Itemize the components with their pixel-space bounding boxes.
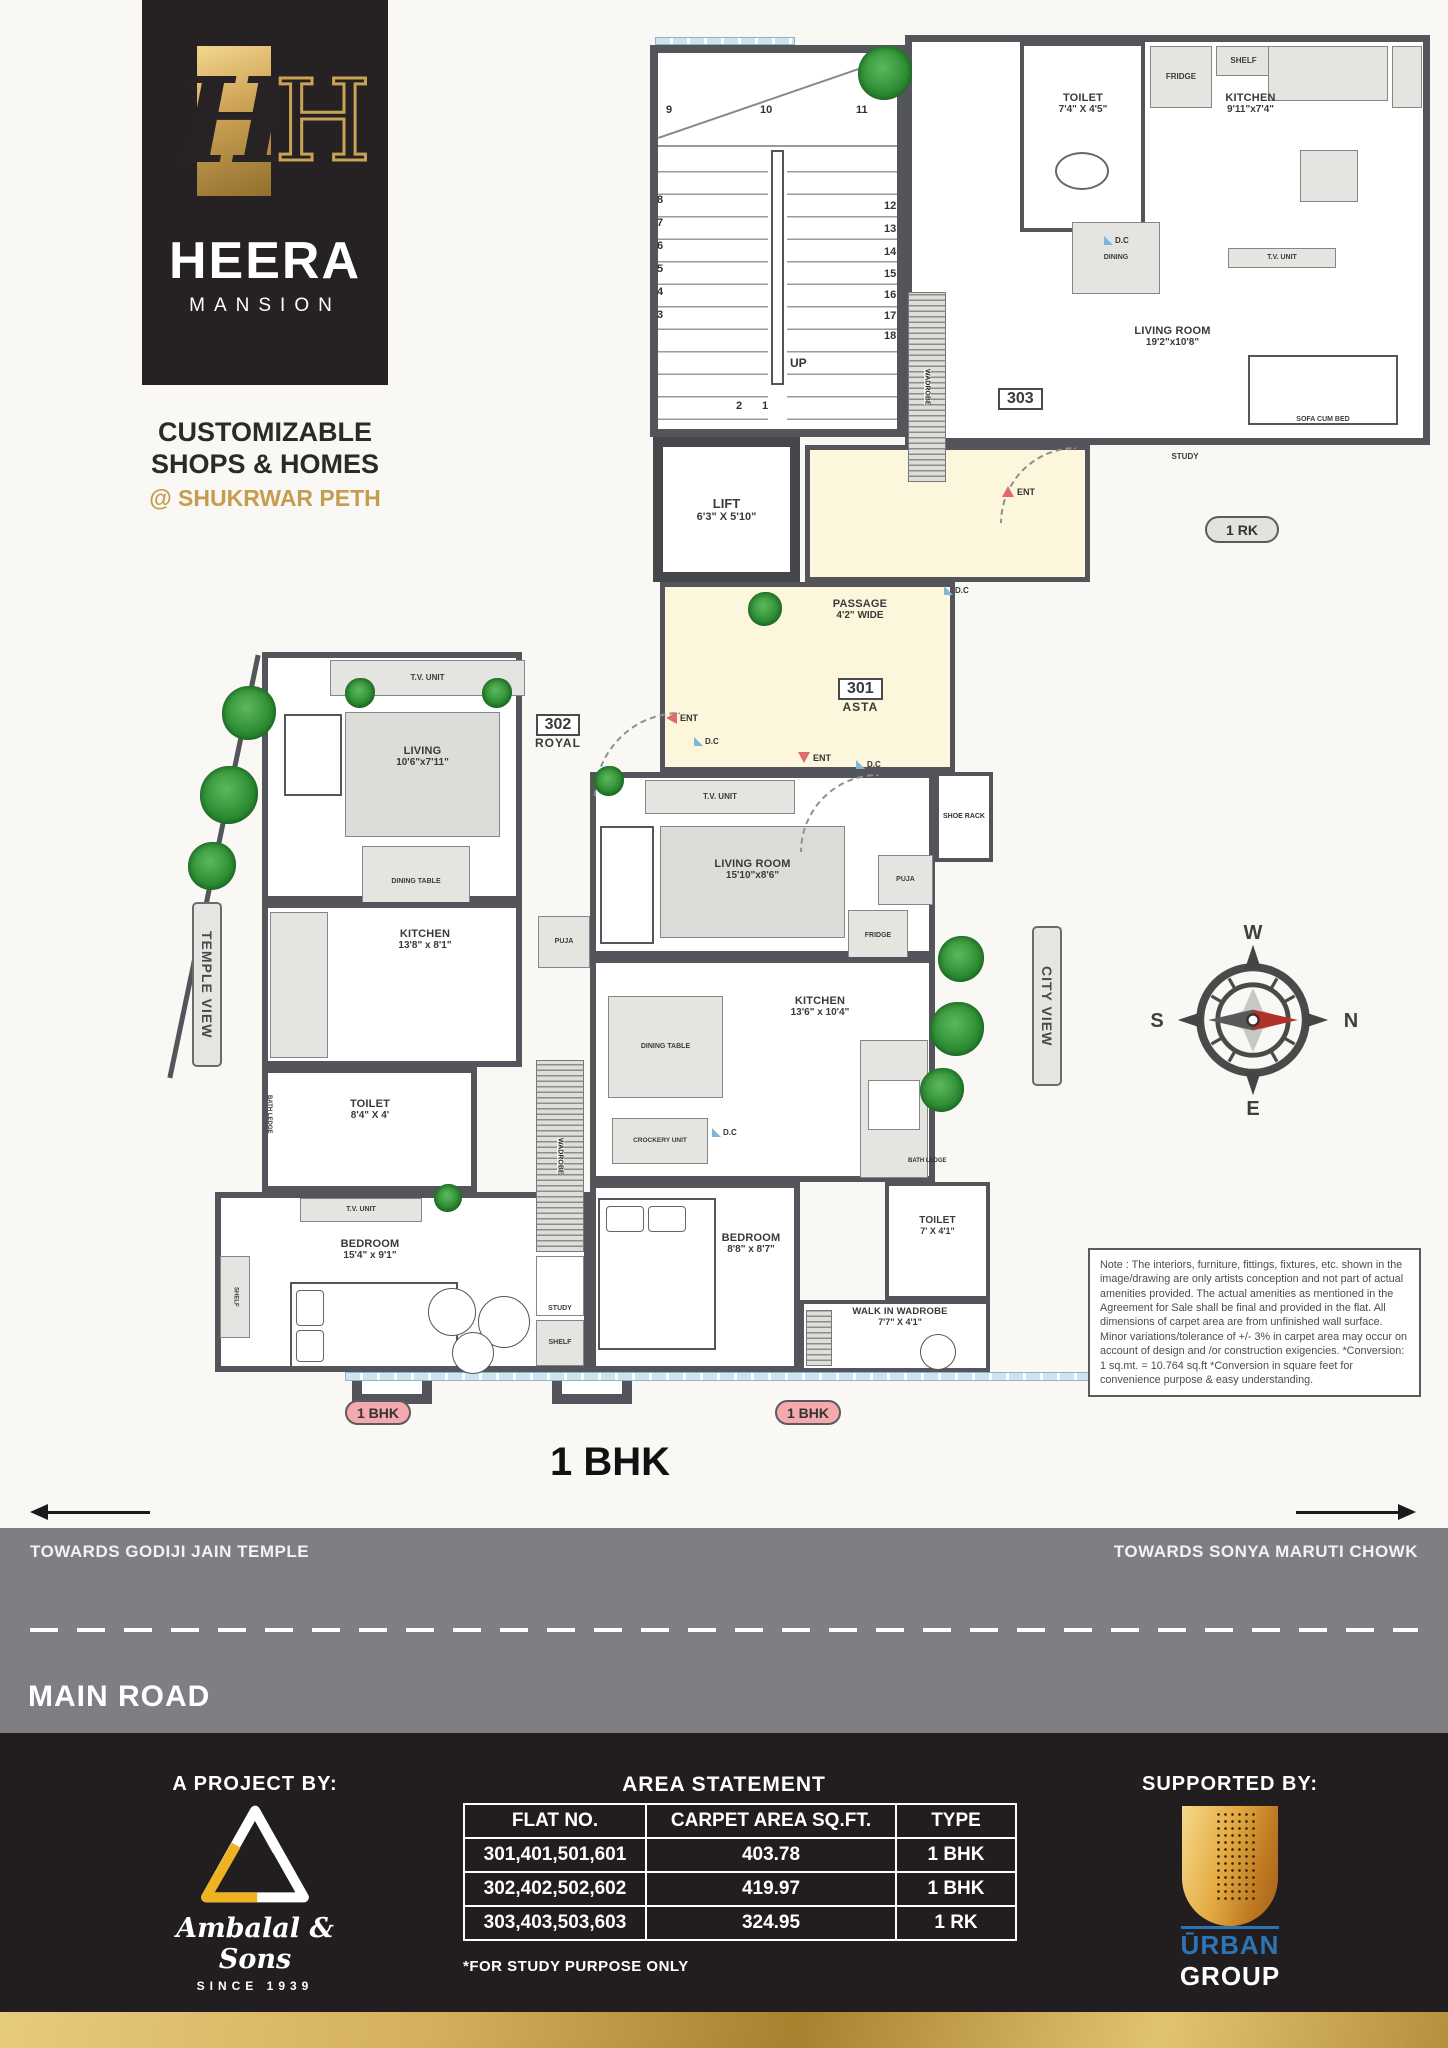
kitchen-counter-302	[270, 912, 328, 1058]
wadrobe-302: WADROBE	[536, 1060, 584, 1252]
brand-name: HEERA	[142, 231, 388, 291]
sofa-301	[600, 826, 654, 944]
shoe-rack-301: SHOE RACK	[935, 772, 993, 862]
unit-303-type-badge: 1 RK	[1205, 516, 1279, 543]
living-303-label: LIVING ROOM 19'2"x10'8"	[1105, 325, 1240, 348]
tagline-line1: CUSTOMIZABLE	[120, 418, 410, 446]
unit-303-id: 303	[998, 388, 1043, 410]
road-left-direction: TOWARDS GODIJI JAIN TEMPLE	[30, 1542, 309, 1562]
stair-up-label: UP	[790, 356, 807, 370]
wadrobe-301	[806, 1310, 832, 1366]
supported-by-label: SUPPORTED BY:	[1130, 1773, 1330, 1796]
person-figure	[428, 1288, 476, 1336]
rug-302	[345, 712, 500, 837]
puja-301: PUJA	[878, 855, 933, 905]
stair-step-number: 8	[657, 194, 663, 206]
stair-rail	[771, 150, 784, 385]
table-row: 302,402,502,602419.971 BHK	[464, 1872, 1016, 1906]
study-303-label: STUDY	[1150, 452, 1220, 461]
disclaimer-note: Note : The interiors, furniture, fitting…	[1088, 1248, 1421, 1397]
passage-label: PASSAGE 4'2" WIDE	[790, 598, 930, 621]
person-figure	[920, 1334, 956, 1370]
stair-step-number: 9	[666, 104, 672, 116]
entrance-302-marker: ENT	[666, 712, 698, 724]
dc-triangle-icon	[856, 760, 865, 769]
window-strip	[345, 1372, 1090, 1381]
kitchen-301-label: KITCHEN 13'6" x 10'4"	[745, 995, 895, 1018]
dc-triangle-icon	[944, 586, 953, 595]
main-road-band: TOWARDS GODIJI JAIN TEMPLE TOWARDS SONYA…	[0, 1528, 1448, 1733]
stair-step-number: 2	[736, 400, 742, 412]
puja-302: PUJA	[538, 916, 590, 968]
project-by-label: A PROJECT BY:	[140, 1773, 370, 1796]
bedroom-302-label: BEDROOM 15'4" x 9'1"	[300, 1238, 440, 1261]
stair-flight-right	[787, 150, 897, 429]
stair-step-number: 17	[884, 310, 896, 322]
project-name: Ambalal & Sons	[140, 1913, 370, 1975]
stair-step-number: 1	[762, 400, 768, 412]
shelf-303: SHELF	[1216, 46, 1271, 76]
living-301-label: LIVING ROOM 15'10"x8'6"	[685, 858, 820, 881]
lift-dimension: 6'3" X 5'10"	[697, 511, 757, 523]
tv-unit-302-bedroom: T.V. UNIT	[300, 1198, 422, 1222]
table-row: 303,403,503,603324.951 RK	[464, 1906, 1016, 1940]
stair-step-number: 15	[884, 268, 896, 280]
right-road-arrow-icon	[1296, 1504, 1416, 1520]
toilet-301	[885, 1182, 990, 1300]
tree-icon	[938, 936, 984, 982]
area-statement-title: AREA STATEMENT	[463, 1773, 985, 1797]
stove-303	[1300, 150, 1358, 202]
gold-footer-strip	[0, 2012, 1448, 2048]
stair-step-number: 14	[884, 246, 896, 258]
living-302-label: LIVING 10'6"x7'11"	[365, 745, 480, 768]
brand-logo: H H HEERA MANSION	[142, 0, 388, 385]
bath-ledge-302: BATH LEDGE	[266, 1095, 272, 1134]
stove-301	[868, 1080, 920, 1130]
dc-marker: D.C	[944, 586, 969, 595]
wadrobe-303: WADROBE	[908, 292, 946, 482]
city-view-label: CITY VIEW	[1032, 926, 1062, 1086]
stair-step-number: 16	[884, 289, 896, 301]
brochure-page: { "brand": { "monogram": "H", "name": "H…	[0, 0, 1448, 2048]
dining-table-301: DINING TABLE	[608, 996, 723, 1098]
crockery-unit-301: CROCKERY UNIT	[612, 1118, 708, 1164]
table-footnote: *FOR STUDY PURPOSE ONLY	[463, 1958, 689, 1975]
wc-icon	[1055, 152, 1109, 190]
unit-301-type-badge: 1 BHK	[775, 1400, 841, 1425]
dining-303: DINING	[1072, 222, 1160, 294]
stair-landing-line	[658, 145, 897, 147]
bedroom-301-label: BEDROOM 8'8" x 8'7"	[705, 1232, 797, 1255]
table-row: 301,401,501,601403.781 BHK	[464, 1838, 1016, 1872]
compass-south-label: S	[1142, 1010, 1172, 1033]
dc-marker: D.C	[1104, 236, 1129, 245]
dc-marker: D.C	[712, 1128, 737, 1137]
unit-301-id: 301ASTA	[838, 678, 883, 714]
entrance-301-marker: ENT	[798, 752, 831, 763]
entrance-303-marker: ENT	[1002, 486, 1035, 497]
walkin-301-label: WALK IN WADROBE 7'7" X 4'1"	[830, 1306, 970, 1327]
window-strip	[655, 37, 795, 45]
brand-subname: MANSION	[142, 295, 388, 317]
shelf-302-side: SHELF	[220, 1256, 250, 1338]
dc-triangle-icon	[694, 737, 703, 746]
stair-step-number: 18	[884, 330, 896, 342]
study-302: STUDY	[536, 1256, 584, 1316]
road-center-dash	[30, 1628, 1418, 1632]
project-by-block: A PROJECT BY: Ambalal & Sons SINCE 1939	[140, 1773, 370, 1993]
stair-step-number: 7	[657, 217, 663, 229]
col-flat-no: FLAT NO.	[464, 1804, 646, 1838]
stair-step-number: 4	[657, 286, 663, 298]
pillow-icon	[296, 1330, 324, 1362]
project-since: SINCE 1939	[140, 1979, 370, 1993]
col-carpet-area: CARPET AREA SQ.FT.	[646, 1804, 896, 1838]
pillow-icon	[648, 1206, 686, 1232]
stair-step-number: 11	[856, 104, 868, 116]
kitchen-302-label: KITCHEN 13'8" x 8'1"	[360, 928, 490, 951]
balcony-bracket	[552, 1380, 632, 1404]
pillow-icon	[296, 1290, 324, 1326]
supported-by-block: SUPPORTED BY: ŪRBAN GROUP	[1130, 1773, 1330, 1992]
stair-step-number: 13	[884, 223, 896, 235]
stair-step-number: 6	[657, 240, 663, 252]
left-road-arrow-icon	[30, 1504, 150, 1520]
tree-icon	[188, 842, 236, 890]
stair-flight-left	[658, 150, 768, 429]
monogram-outline-letter: H	[274, 52, 372, 192]
compass-west-label: W	[1238, 922, 1268, 945]
dc-marker: D.C	[694, 737, 719, 746]
tv-unit-303: T.V. UNIT	[1228, 248, 1336, 268]
toilet-302	[262, 1067, 477, 1192]
fridge-301: FRIDGE	[848, 910, 908, 962]
shelf-302: SHELF	[536, 1320, 584, 1366]
footer-band: A PROJECT BY: Ambalal & Sons SINCE 1939 …	[0, 1733, 1448, 2012]
table-header-row: FLAT NO. CARPET AREA SQ.FT. TYPE	[464, 1804, 1016, 1838]
col-type: TYPE	[896, 1804, 1016, 1838]
tagline-line2: SHOPS & HOMES	[120, 450, 410, 478]
dc-triangle-icon	[712, 1128, 721, 1137]
lamp-figure	[452, 1332, 494, 1374]
tree-icon	[200, 766, 258, 824]
tree-icon	[920, 1068, 964, 1112]
toilet-303	[1020, 42, 1145, 232]
ent-arrow-icon	[1002, 486, 1014, 497]
bath-ledge-301: BATH LEDGE	[908, 1158, 947, 1164]
urban-group-logo-icon	[1182, 1806, 1278, 1926]
plan-title: 1 BHK	[460, 1440, 760, 1485]
compass-north-label: N	[1336, 1010, 1366, 1033]
stair-step-number: 12	[884, 200, 896, 212]
kitchen-sink-303	[1392, 46, 1422, 108]
toilet-302-label: TOILET 8'4" X 4'	[300, 1098, 440, 1121]
kitchen-303-label: KITCHEN 9'11"x7'4"	[1188, 92, 1313, 115]
stair-step-number: 3	[657, 309, 663, 321]
brand-monogram-icon: H H	[142, 28, 388, 223]
stair-step-number: 10	[760, 104, 772, 116]
stair-step-number: 5	[657, 263, 663, 275]
sofa-cum-bed-303: SOFA CUM BED	[1248, 355, 1398, 425]
dc-marker: D.C	[856, 760, 881, 769]
lift-label: LIFT	[713, 496, 740, 511]
unit-302-id: 302ROYAL	[535, 714, 581, 750]
dc-triangle-icon	[1104, 236, 1113, 245]
ambalal-sons-logo-icon	[196, 1804, 314, 1904]
temple-view-label: TEMPLE VIEW	[192, 902, 222, 1067]
road-right-direction: TOWARDS SONYA MARUTI CHOWK	[1114, 1542, 1418, 1562]
ent-arrow-icon	[666, 712, 677, 724]
supporter-name: ŪRBAN GROUP	[1130, 1930, 1330, 1992]
tree-icon	[930, 1002, 984, 1056]
pillow-icon	[606, 1206, 644, 1232]
area-statement-table: FLAT NO. CARPET AREA SQ.FT. TYPE 301,401…	[463, 1803, 1017, 1941]
toilet-303-label: TOILET 7'4" X 4'5"	[1024, 92, 1142, 115]
ent-arrow-icon	[798, 752, 810, 763]
unit-302-type-badge: 1 BHK	[345, 1400, 411, 1425]
toilet-301-label: TOILET 7' X 4'1"	[890, 1215, 985, 1236]
monogram-gold-panel: H	[197, 46, 271, 196]
sofa-302	[284, 714, 342, 796]
road-name: MAIN ROAD	[28, 1680, 210, 1714]
compass-east-label: E	[1238, 1098, 1268, 1121]
lift: LIFT 6'3" X 5'10"	[653, 437, 800, 582]
tagline-line3: @ SHUKRWAR PETH	[120, 486, 410, 510]
stair-diagonal-line	[658, 58, 887, 139]
compass-icon	[1173, 940, 1333, 1100]
